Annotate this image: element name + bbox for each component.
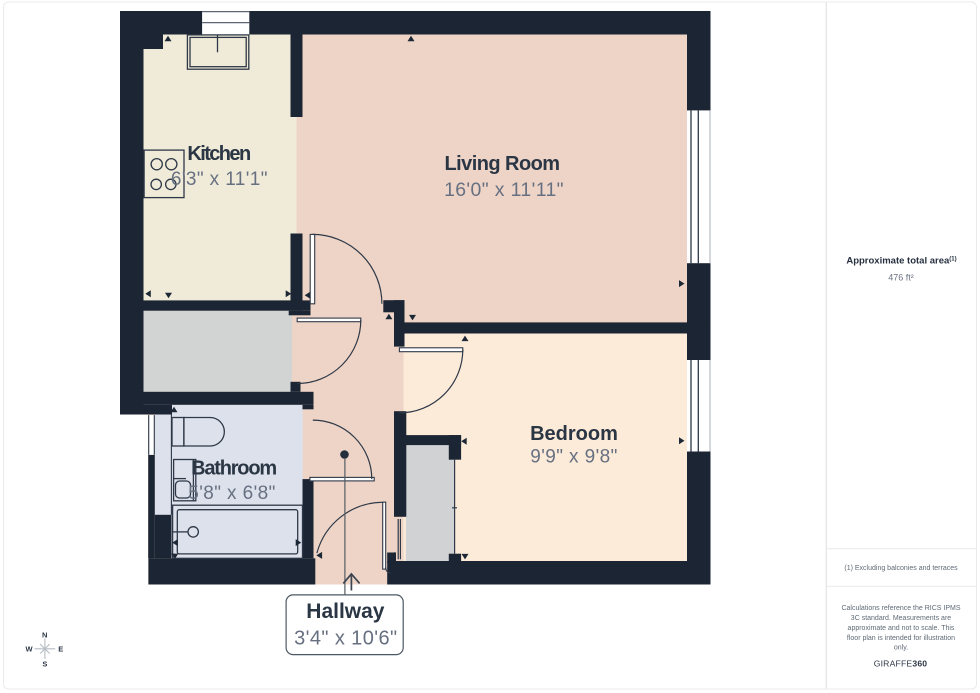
svg-text:Hallway: Hallway	[306, 600, 385, 623]
svg-text:Bedroom: Bedroom	[530, 423, 618, 445]
svg-text:Approximate total area(1): Approximate total area(1)	[846, 256, 956, 267]
svg-text:Kitchen: Kitchen	[187, 143, 250, 165]
svg-text:N: N	[42, 631, 47, 640]
svg-text:GIRAFFE360: GIRAFFE360	[874, 658, 928, 668]
svg-text:Bathroom: Bathroom	[191, 457, 276, 479]
svg-text:only.: only.	[894, 645, 908, 652]
svg-text:floor plan is intended for ill: floor plan is intended for illustration	[847, 635, 955, 642]
svg-text:3C standard. Measurements are: 3C standard. Measurements are	[851, 615, 951, 622]
svg-text:W: W	[25, 645, 33, 654]
svg-text:Calculations reference the RIC: Calculations reference the RICS IPMS	[841, 605, 960, 612]
svg-text:9'9" x 9'8": 9'9" x 9'8"	[530, 447, 617, 468]
svg-text:E: E	[58, 645, 63, 654]
svg-text:16'0" x 11'11": 16'0" x 11'11"	[444, 179, 564, 201]
svg-text:approximate and not to scale.: approximate and not to scale. This	[848, 625, 955, 632]
svg-text:S: S	[42, 660, 47, 669]
svg-text:5'8" x 6'8": 5'8" x 6'8"	[188, 483, 275, 504]
svg-text:3'4" x 10'6": 3'4" x 10'6"	[294, 628, 397, 650]
svg-text:476 ft²: 476 ft²	[888, 273, 914, 283]
svg-text:Living Room: Living Room	[444, 153, 559, 175]
svg-text:(1) Excluding balconies and te: (1) Excluding balconies and terraces	[844, 565, 958, 572]
svg-text:6'3" x 11'1": 6'3" x 11'1"	[171, 169, 268, 190]
